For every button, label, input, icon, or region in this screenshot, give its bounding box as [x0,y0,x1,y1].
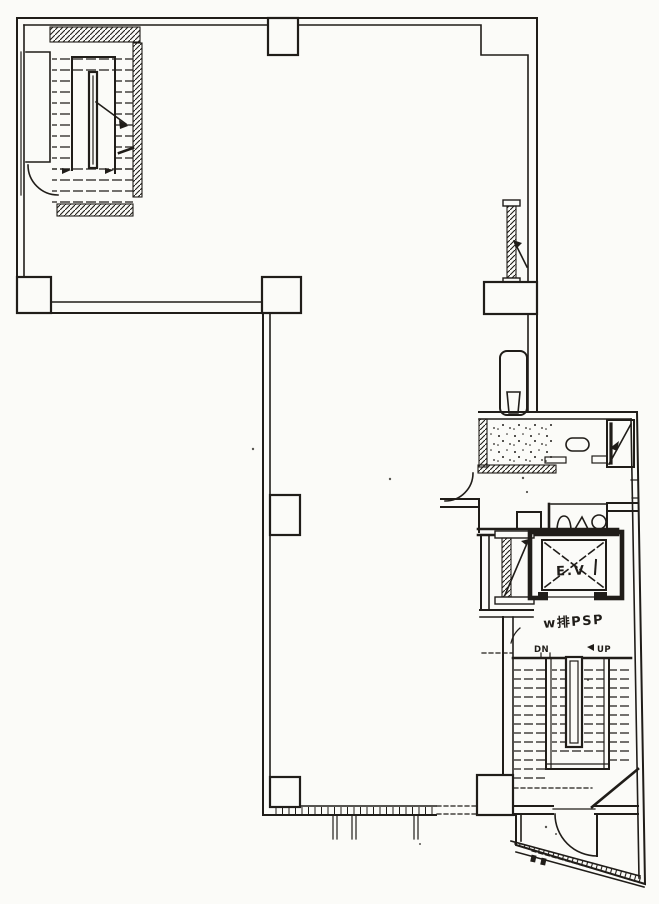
partition-stub [592,456,607,463]
floorplan-sheet: E.V w排PSP DN UP [0,0,659,904]
stair-treads-landing [52,168,133,204]
column [477,775,513,815]
corridor [441,473,637,535]
column [270,495,300,535]
corridor-door-arc [445,473,473,501]
stair-up-arrow [587,644,594,651]
fixture-arch [557,516,571,529]
elevator: E.V [530,532,622,602]
washroom-wall-south [478,465,556,473]
note-text: w排PSP [543,612,605,632]
stair-treads-right [610,662,631,764]
stair-wall-hatch-east [133,43,142,197]
elevator-tick [595,560,596,574]
fixture-circle [592,515,606,529]
stair-treads-left [514,662,546,786]
bottom-wall-ticks [272,807,435,815]
entrance-door-arc [555,814,597,856]
elevator-label: E.V [556,563,586,579]
column [17,277,51,313]
stair-wall-hatch-top [50,27,140,42]
fixture-cabinet [517,512,541,529]
shaft-cap [503,200,520,206]
inner-wall-top-right [24,25,528,412]
stair-treads-left [52,56,72,172]
column [270,777,300,807]
stair-closet [26,52,50,162]
column [268,18,298,55]
toilet-enclosure [500,351,527,415]
washroom-wall-west [479,419,487,467]
floorplan-drawing: E.V w排PSP DN UP [0,0,659,904]
column [484,282,537,314]
chamfer-wall [592,769,638,807]
fixture-alcove [517,512,606,529]
toilet-bowl [507,392,520,413]
east-duct-shaft [503,200,527,284]
upper-stairwell [21,27,142,216]
shaft-hatch [502,538,511,597]
sink-basin [566,438,589,451]
toilet-stall [500,351,527,415]
stair-wall-hatch-south [57,204,133,216]
stair-up-label: UP [597,645,611,655]
pipe-shaft [480,531,534,617]
washroom [478,412,637,473]
elevator-door-jamb [594,592,607,599]
entrance-steps-hatch [511,841,645,885]
entrance-vestibule [511,806,645,887]
stair-newel [566,657,582,747]
column [262,277,301,313]
stair-treads-right [116,56,133,176]
elevator-door-jamb [538,592,548,599]
washroom-floor-stipple [489,424,553,462]
fixture-triangle [575,517,588,529]
entrance-steps-edge [511,841,640,876]
